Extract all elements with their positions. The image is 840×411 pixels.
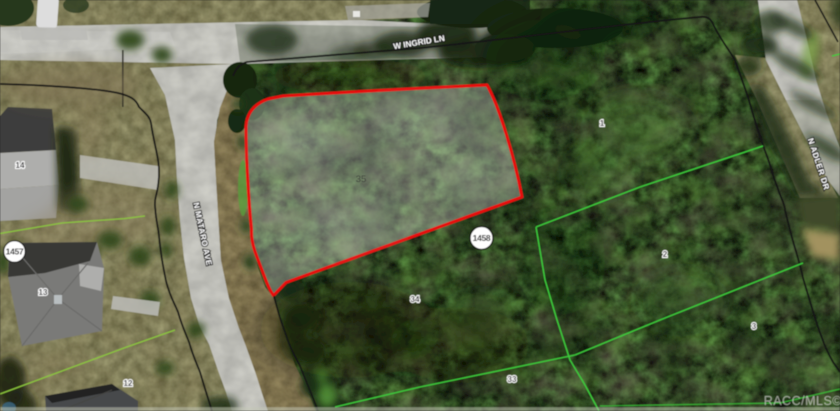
svg-text:35: 35 [356,174,367,185]
svg-text:1457: 1457 [6,247,24,257]
svg-text:1: 1 [600,119,605,128]
svg-text:34: 34 [411,295,420,304]
svg-text:14: 14 [16,161,25,170]
svg-text:RACC/MLS©: RACC/MLS© [764,394,840,408]
svg-text:1458: 1458 [473,233,491,243]
svg-text:13: 13 [39,288,48,297]
svg-text:12: 12 [124,379,133,388]
svg-text:3: 3 [752,322,757,331]
svg-text:2: 2 [663,250,668,259]
svg-text:33: 33 [508,375,517,384]
